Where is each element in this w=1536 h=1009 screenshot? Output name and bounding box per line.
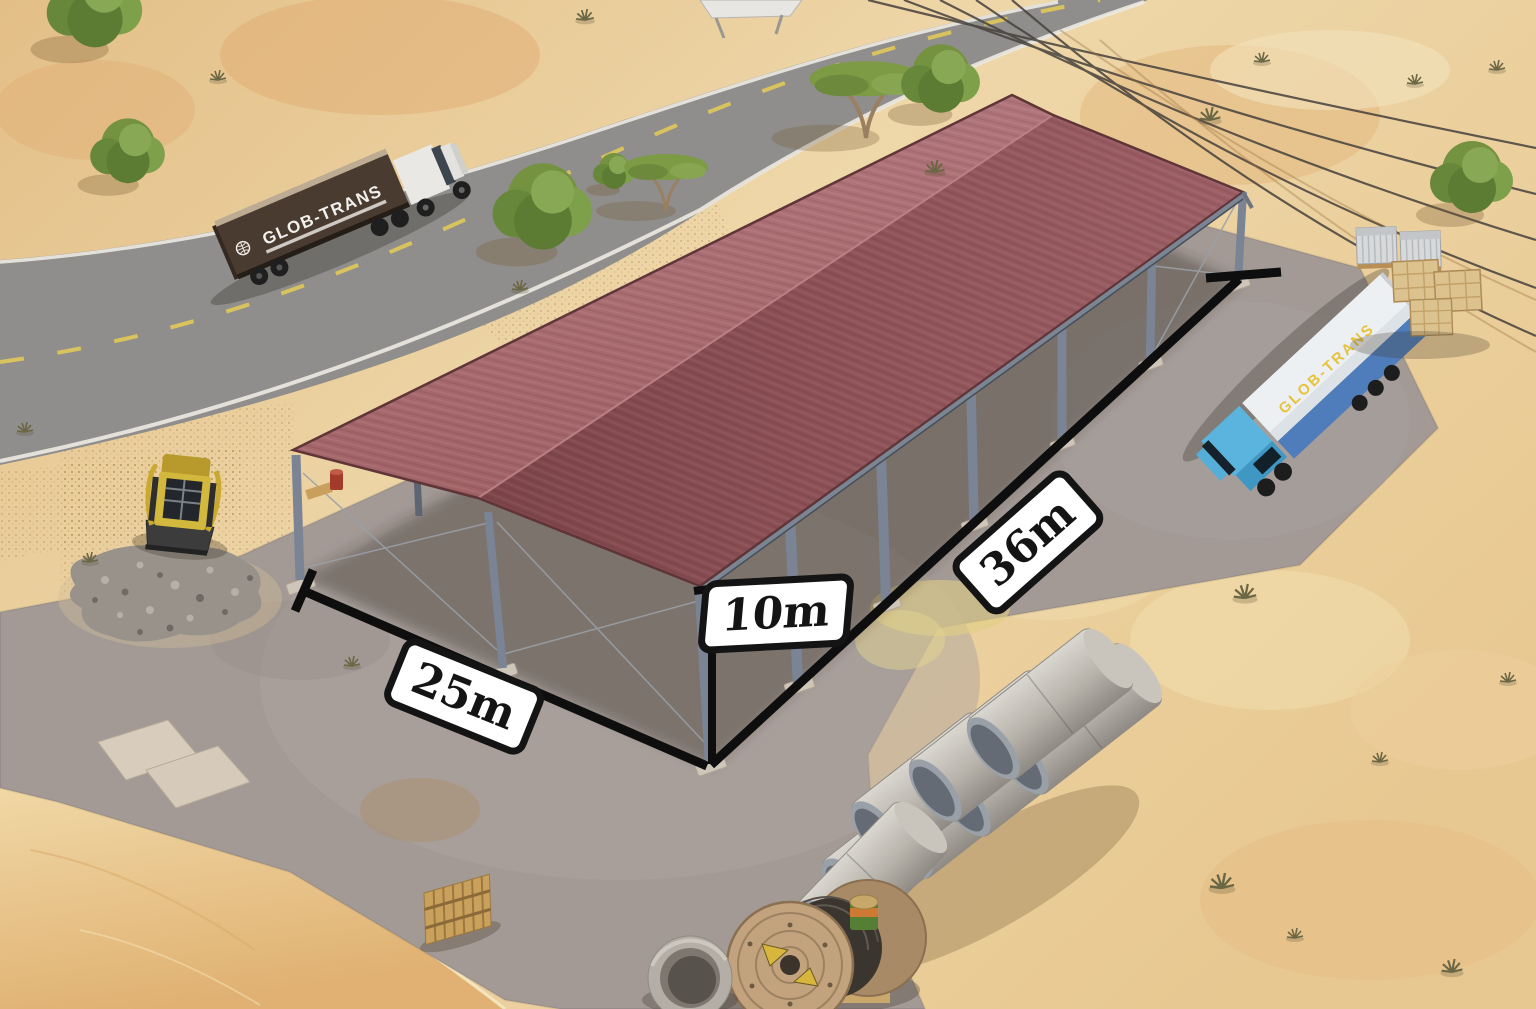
- aerial-3d-scene: GLOB-TRANS: [0, 0, 1536, 1009]
- dimension-cap-36m: [1206, 272, 1281, 278]
- scene-svg: GLOB-TRANS: [0, 0, 1536, 1009]
- dimension-label-10m: 10m: [697, 573, 855, 655]
- striped-barrel: [850, 895, 878, 930]
- dirt-stain: [360, 778, 480, 842]
